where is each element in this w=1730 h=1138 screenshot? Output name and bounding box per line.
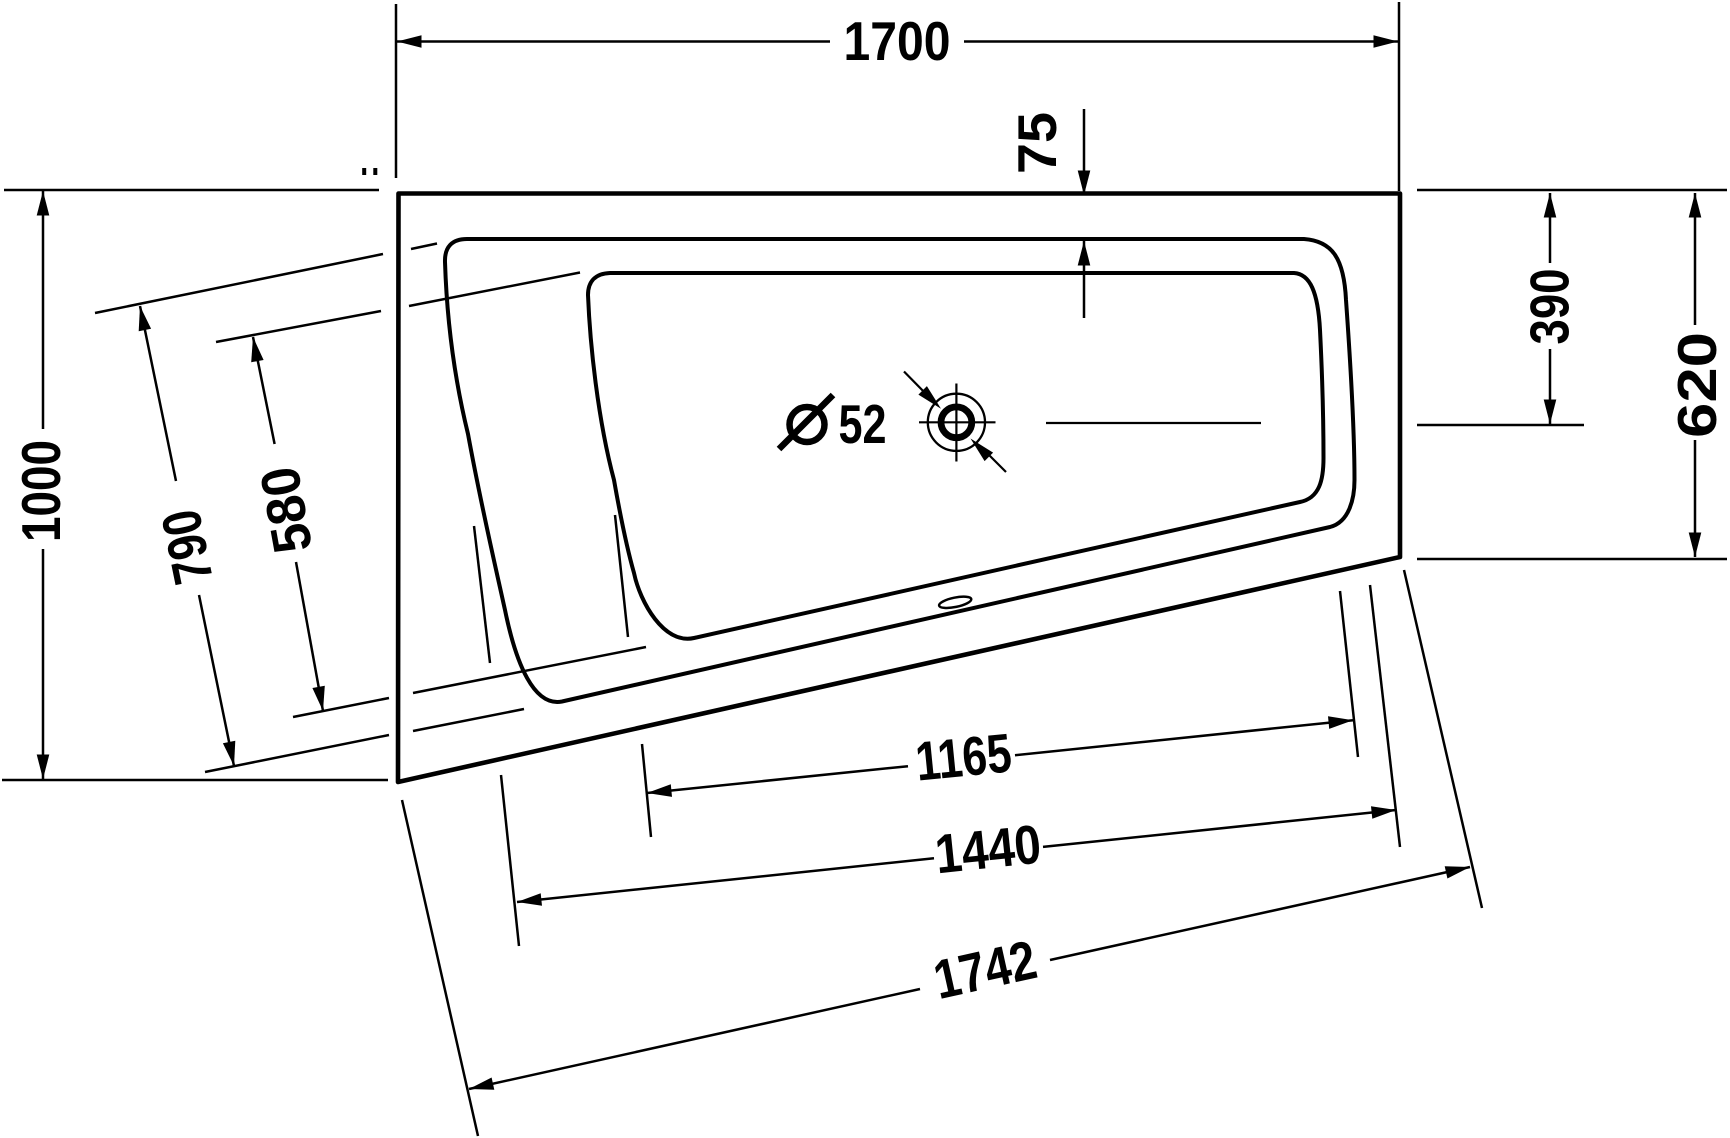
svg-text:1165: 1165 [913, 721, 1015, 792]
svg-text:390: 390 [1519, 269, 1581, 345]
svg-text:1700: 1700 [844, 10, 951, 72]
svg-text:52: 52 [839, 393, 887, 455]
svg-text:1440: 1440 [932, 813, 1044, 886]
svg-text:75: 75 [1006, 112, 1068, 174]
svg-text:620: 620 [1666, 332, 1728, 438]
svg-text:1000: 1000 [10, 440, 72, 542]
